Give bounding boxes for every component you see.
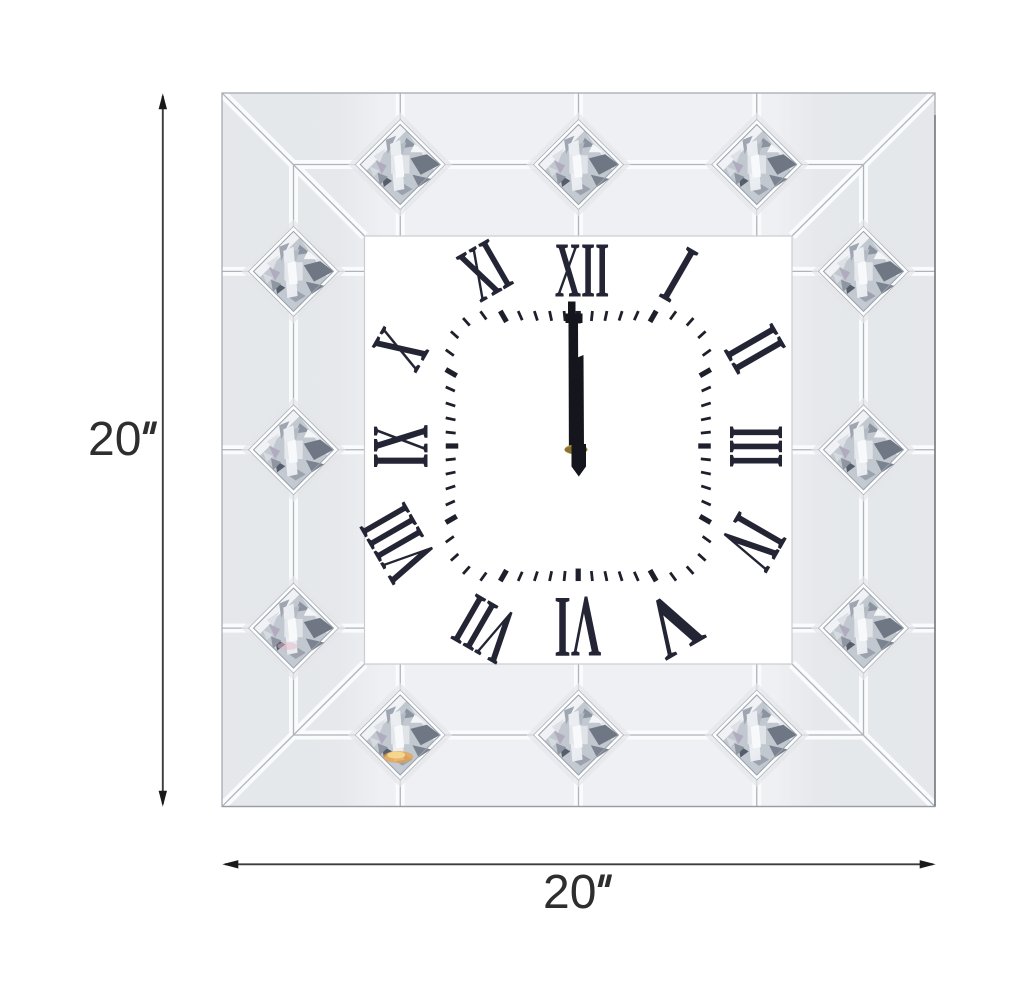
svg-text:20: 20 xyxy=(88,413,141,466)
svg-text:VI: VI xyxy=(554,579,601,676)
svg-text:20: 20 xyxy=(543,866,596,919)
svg-text:XII: XII xyxy=(555,227,610,314)
svg-text:III: III xyxy=(712,425,799,467)
svg-text:IX: IX xyxy=(355,425,445,469)
